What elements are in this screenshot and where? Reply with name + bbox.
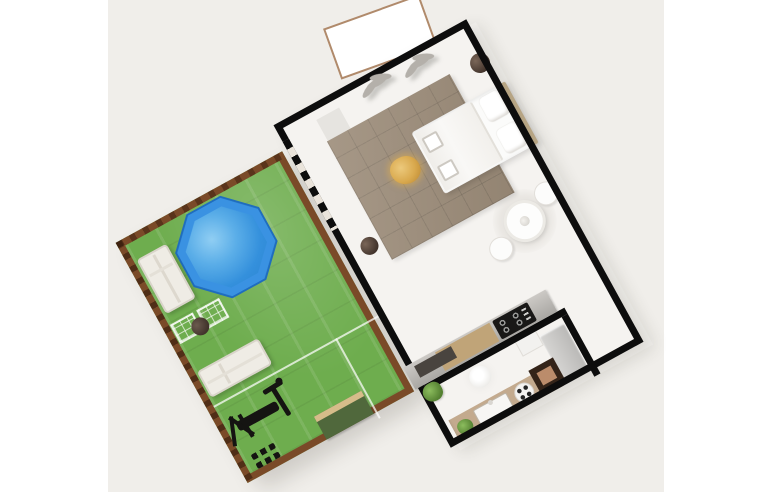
cooktop-knobs	[521, 307, 532, 321]
dumbbell-rack[interactable]	[250, 442, 281, 470]
lounger-seam	[149, 262, 173, 277]
burner-icon	[515, 318, 525, 328]
leaf-icon	[412, 52, 435, 62]
leaf-icon	[369, 72, 392, 82]
floorplan-viewport	[0, 0, 764, 492]
gym-machine[interactable]	[219, 376, 305, 450]
pool-water	[175, 195, 278, 298]
lounger-seam	[207, 352, 263, 384]
burner-icon	[502, 325, 512, 335]
lounger-seam	[152, 254, 181, 303]
